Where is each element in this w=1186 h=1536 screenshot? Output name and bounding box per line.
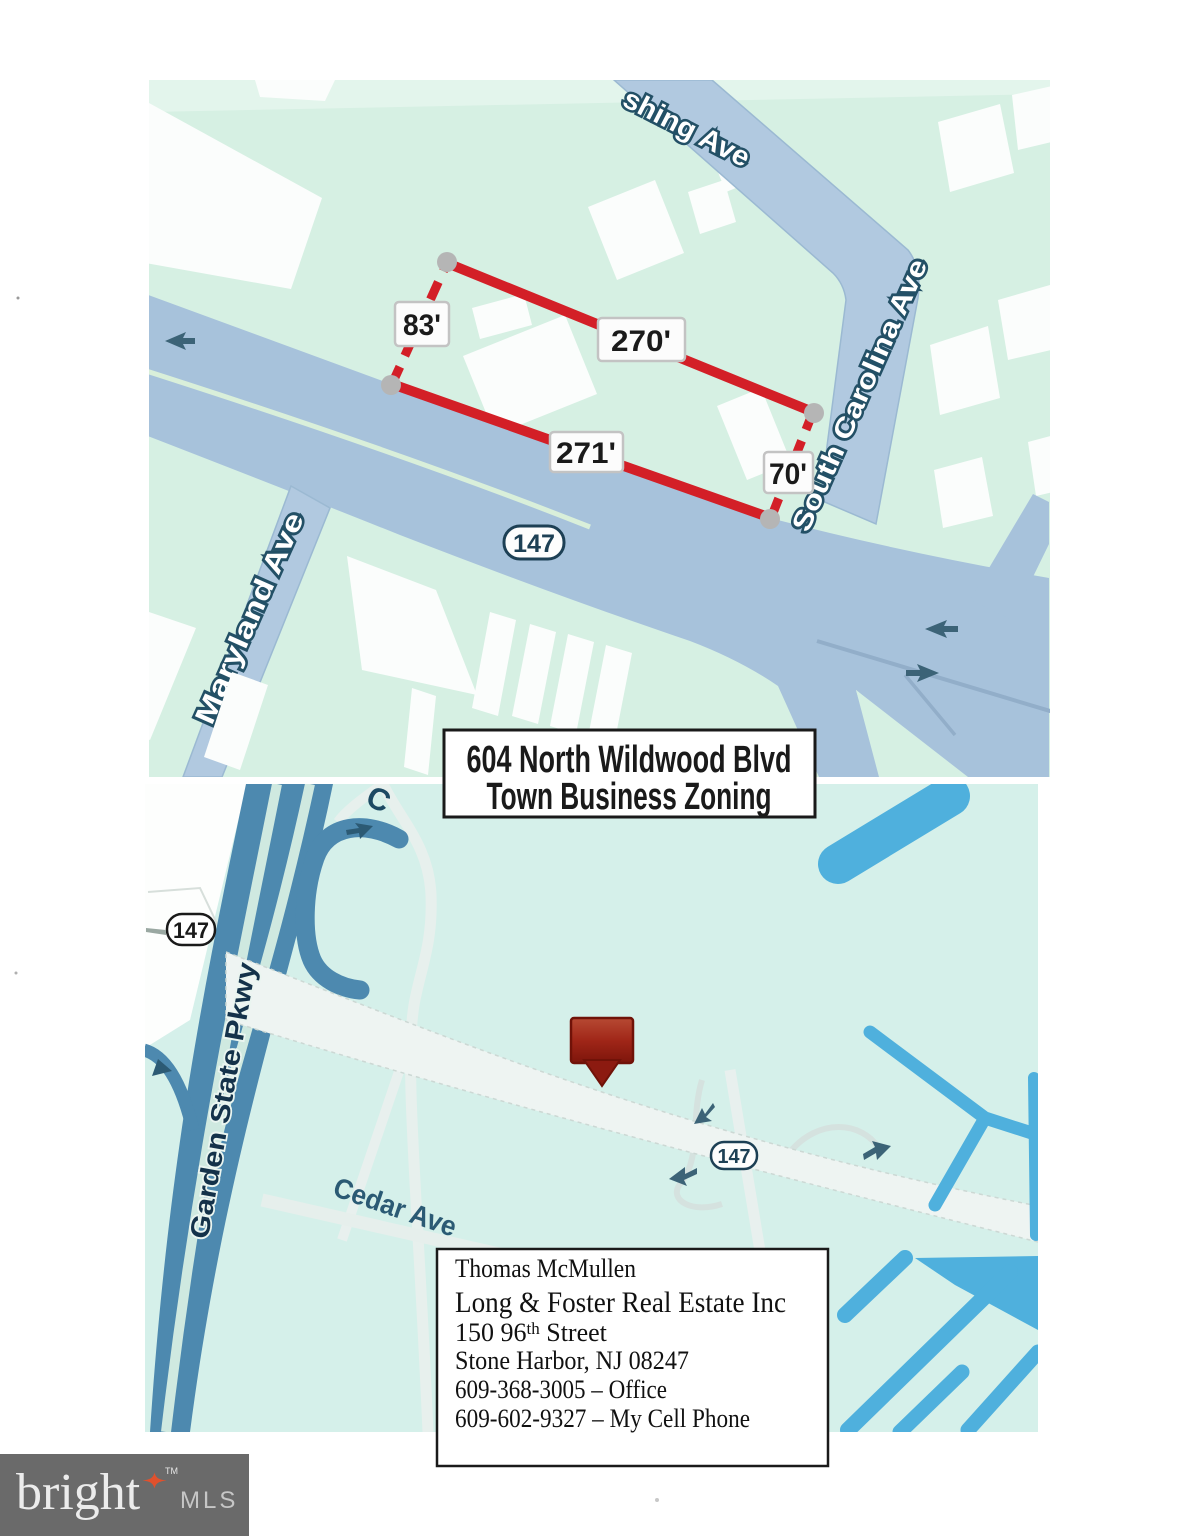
svg-text:70': 70' [769, 458, 807, 491]
svg-text:Town Business Zoning: Town Business Zoning [487, 776, 772, 818]
svg-text:Long & Foster Real Estate Inc: Long & Foster Real Estate Inc [455, 1286, 786, 1319]
svg-text:Thomas McMullen: Thomas McMullen [455, 1254, 636, 1283]
svg-text:Stone Harbor, NJ 08247: Stone Harbor, NJ 08247 [455, 1346, 689, 1375]
svg-text:604 North Wildwood Blvd: 604 North Wildwood Blvd [467, 739, 792, 781]
svg-text:83': 83' [403, 309, 441, 342]
svg-text:271': 271' [556, 437, 616, 470]
svg-text:270': 270' [611, 325, 671, 358]
svg-text:147: 147 [513, 530, 555, 558]
svg-text:MLS: MLS [180, 1487, 238, 1514]
svg-text:TM: TM [165, 1466, 178, 1476]
svg-text:147: 147 [718, 1146, 751, 1168]
svg-text:609-602-9327 – My Cell Phone: 609-602-9327 – My Cell Phone [455, 1404, 750, 1433]
svg-text:147: 147 [173, 918, 209, 943]
svg-text:bright: bright [16, 1464, 141, 1521]
svg-text:609-368-3005 – Office: 609-368-3005 – Office [455, 1375, 667, 1404]
